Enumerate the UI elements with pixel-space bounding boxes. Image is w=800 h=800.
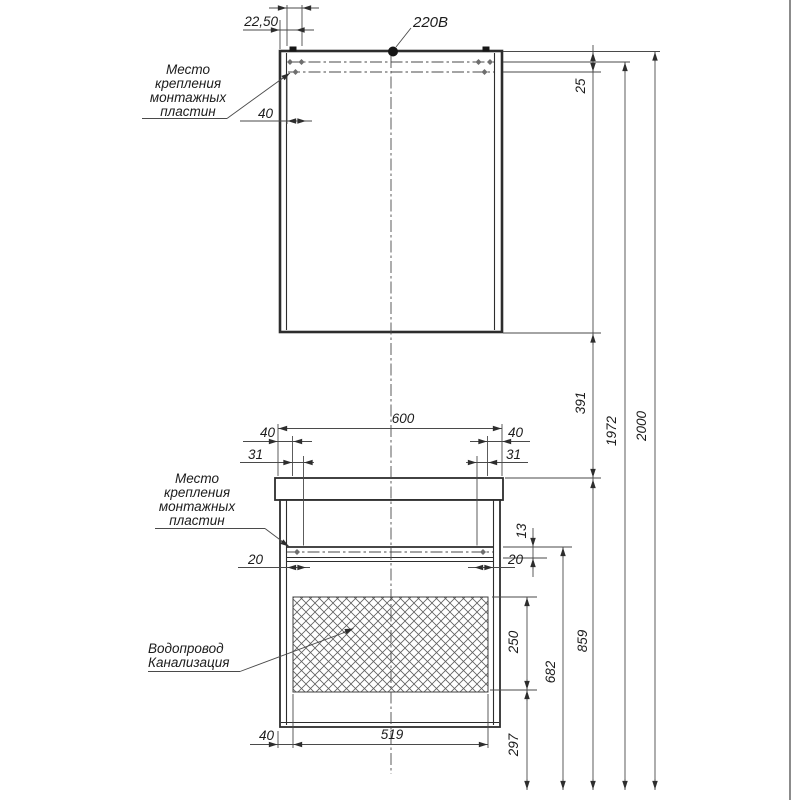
dim-31l-label: 31 [248, 447, 263, 462]
dims-right-column: 25 391 859 1972 2000 682 250 297 13 [490, 45, 660, 790]
dim-519-label: 519 [381, 727, 404, 742]
top-fixing-left [290, 47, 297, 52]
dim-20r-label: 20 [507, 552, 524, 567]
countertop [275, 478, 503, 500]
mount-bottom-line4: пластин [169, 513, 225, 528]
dim-13-label: 13 [514, 523, 529, 539]
dim-40l-label: 40 [260, 425, 276, 440]
dim-250-label: 250 [506, 630, 521, 654]
dim-40top-label: 40 [258, 106, 274, 121]
plumbing-access-hatch [293, 597, 488, 692]
dim-40r-label: 40 [508, 425, 524, 440]
mount-top-line4: пластин [160, 104, 216, 119]
power-label: 220В [412, 14, 448, 31]
dim-859-label: 859 [575, 629, 590, 652]
mount-top-line3: монтажных [150, 90, 227, 105]
plumbing-line2: Канализация [148, 655, 229, 670]
dim-40b-label: 40 [259, 728, 275, 743]
mount-top-line1: Место [166, 62, 210, 77]
dim-682-label: 682 [543, 660, 558, 683]
dim-25-label: 25 [573, 78, 588, 95]
vanity-cabinet [275, 478, 503, 727]
dim-2000-label: 2000 [634, 410, 649, 442]
dim-20l-label: 20 [247, 552, 264, 567]
drawing-canvas: 22,50 40 [0, 0, 800, 800]
top-fixing-right [483, 47, 490, 52]
plumbing-line1: Водопровод [148, 641, 224, 656]
power-outlet-point [388, 47, 398, 57]
annotation-mount-bottom: Место крепления монтажных пластин [155, 471, 289, 547]
dim-297-label: 297 [506, 733, 521, 757]
annotation-power: 220В [396, 14, 448, 47]
dim-31r-label: 31 [506, 447, 521, 462]
dim-391-label: 391 [573, 392, 588, 415]
mount-bottom-line1: Место [175, 471, 219, 486]
installation-drawing: 22,50 40 [0, 0, 800, 800]
dim-2250-label: 22,50 [243, 14, 278, 29]
mount-bottom-line2: крепления [164, 485, 230, 500]
dim-600-label: 600 [392, 411, 415, 426]
mount-top-line2: крепления [155, 76, 221, 91]
dim-1972-label: 1972 [604, 415, 619, 446]
mount-bottom-line3: монтажных [159, 499, 236, 514]
